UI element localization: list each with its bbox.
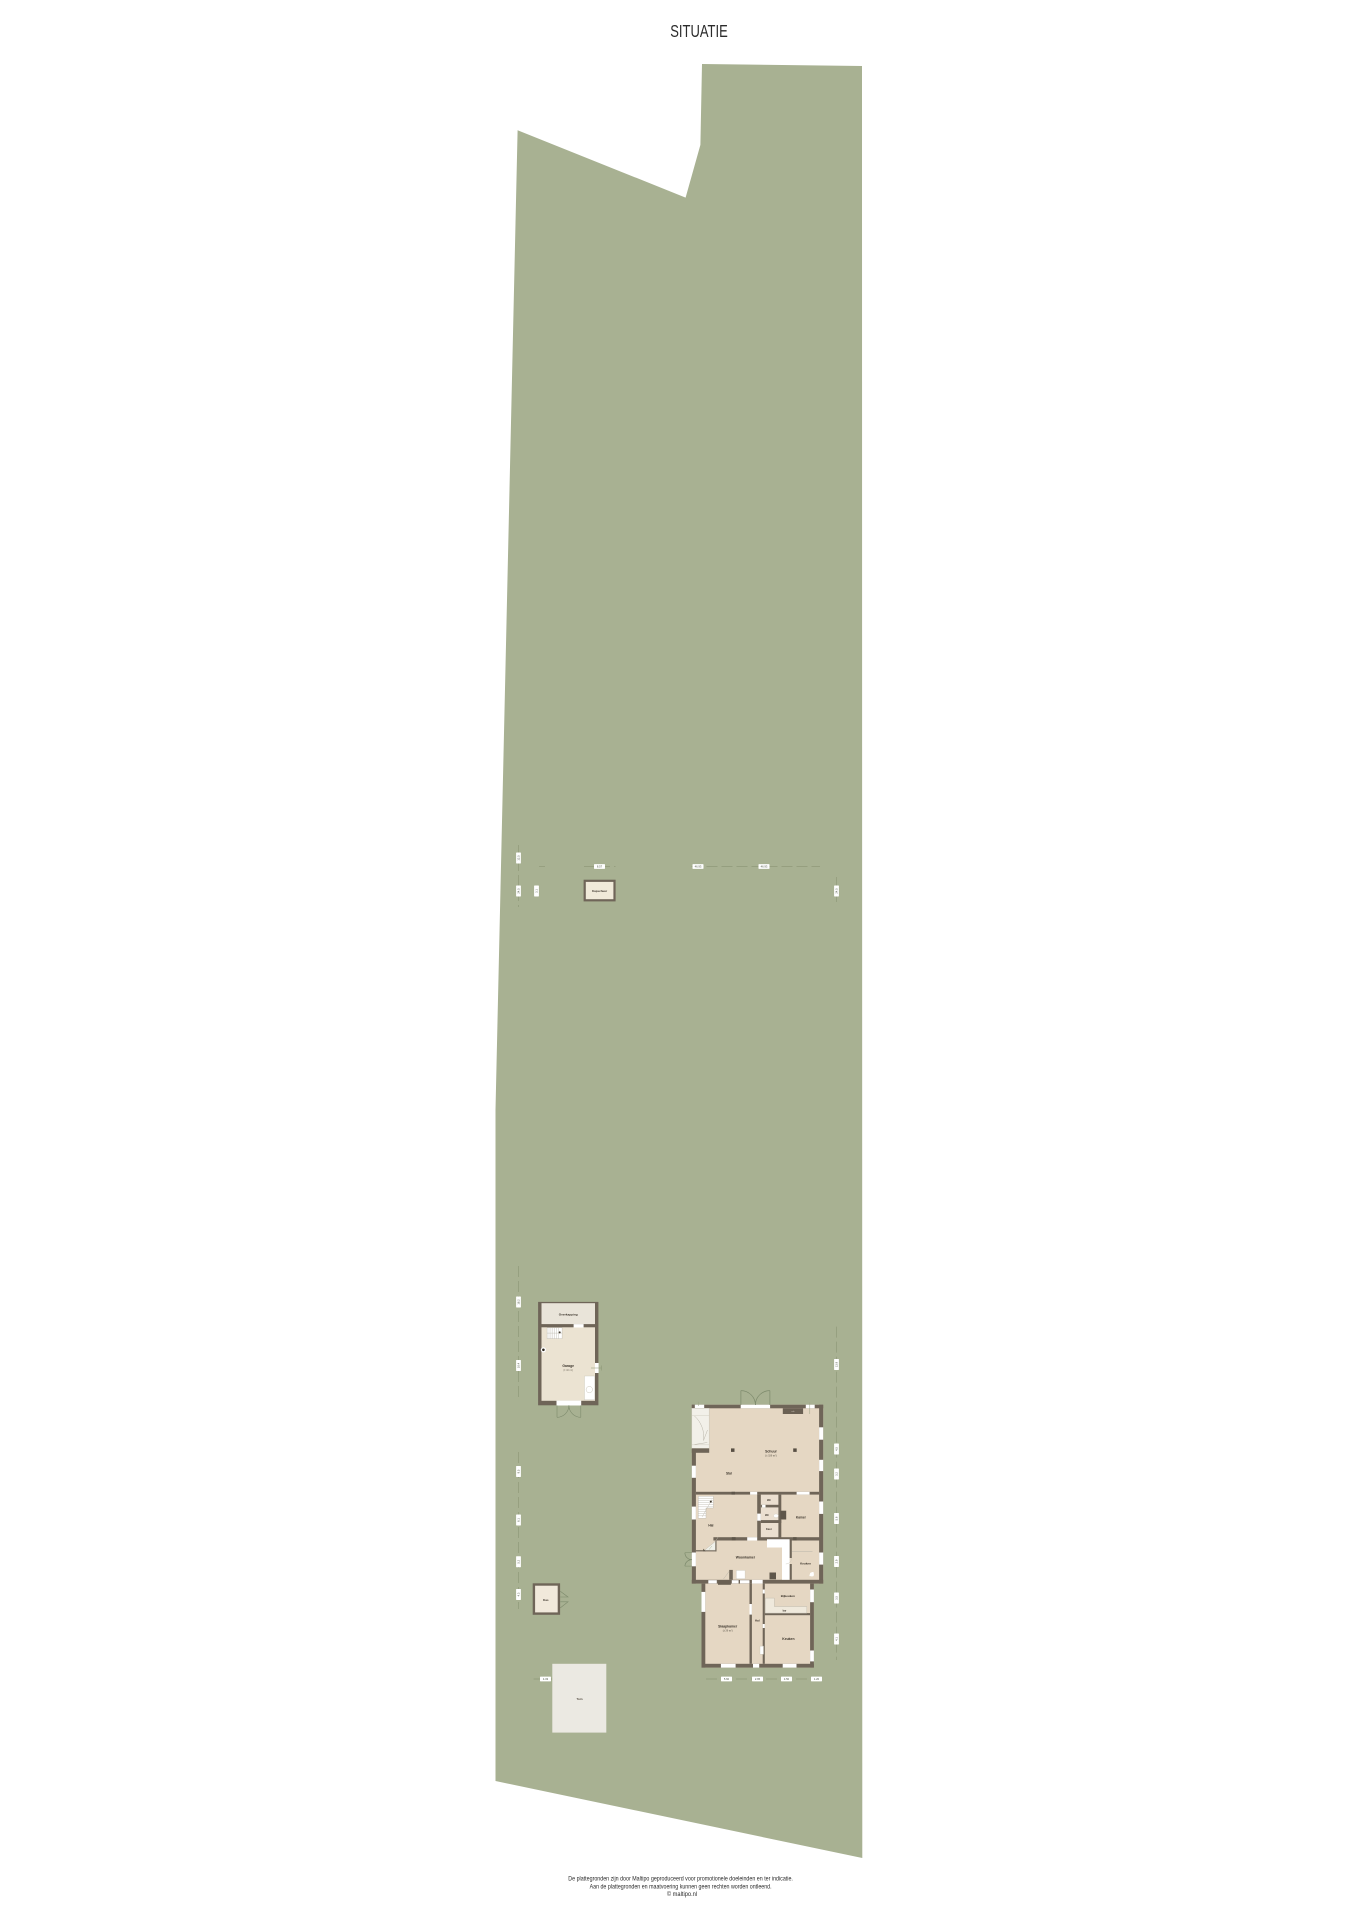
svg-text:4.1: 4.1: [834, 1637, 838, 1641]
svg-text:Overkapping: Overkapping: [559, 1313, 578, 1317]
svg-text:8.57: 8.57: [597, 865, 603, 869]
svg-text:bar: bar: [783, 1609, 787, 1612]
svg-text:6.1: 6.1: [516, 1518, 520, 1522]
svg-text:2.9: 2.9: [834, 1559, 838, 1563]
svg-text:SITUATIE: SITUATIE: [670, 21, 728, 41]
svg-text:4.3: 4.3: [516, 1592, 520, 1596]
svg-text:Keuken: Keuken: [782, 1637, 794, 1641]
svg-text:4.33: 4.33: [543, 1677, 549, 1681]
svg-text:(± 150 m²): (± 150 m²): [765, 1454, 776, 1458]
svg-text:5.6: 5.6: [834, 1516, 838, 1520]
svg-text:2.95: 2.95: [755, 1677, 761, 1681]
svg-text:Stal: Stal: [726, 1471, 732, 1475]
svg-text:12.5: 12.5: [516, 855, 520, 861]
svg-text:Hal: Hal: [755, 1619, 760, 1623]
svg-text:Bijkeuken: Bijkeuken: [781, 1594, 795, 1598]
svg-text:Wc: Wc: [767, 1498, 772, 1502]
svg-text:Kas: Kas: [543, 1598, 549, 1602]
svg-text:9.5: 9.5: [516, 1469, 520, 1473]
svg-text:Kast: Kast: [766, 1527, 772, 1531]
svg-text:5.2: 5.2: [516, 1559, 520, 1563]
svg-text:© maltipo.nl: © maltipo.nl: [667, 1890, 698, 1898]
svg-text:Woonkamer: Woonkamer: [736, 1556, 756, 1560]
svg-text:24.5: 24.5: [516, 888, 520, 894]
svg-text:Kapschuur: Kapschuur: [592, 889, 608, 893]
svg-text:Schuur: Schuur: [765, 1450, 777, 1454]
svg-text:(± 20 m²): (± 20 m²): [723, 1628, 733, 1632]
svg-text:5.60: 5.60: [724, 1677, 730, 1681]
svg-text:Kamer: Kamer: [796, 1515, 807, 1519]
svg-text:24.5: 24.5: [834, 888, 838, 894]
svg-text:Wc: Wc: [765, 1513, 770, 1517]
svg-text:Keuken: Keuken: [800, 1561, 811, 1565]
svg-text:De plattegronden zijn door Mal: De plattegronden zijn door Maltipo gepro…: [568, 1876, 793, 1883]
svg-text:Aan de plattegronden en maatvo: Aan de plattegronden en maatvoering kunn…: [590, 1883, 772, 1890]
svg-text:46.93: 46.93: [695, 865, 702, 869]
svg-text:3.2: 3.2: [834, 1472, 838, 1476]
svg-text:10.4: 10.4: [516, 1362, 520, 1368]
svg-text:Garage: Garage: [562, 1364, 574, 1368]
svg-text:18.2: 18.2: [516, 1299, 520, 1305]
svg-text:3.1: 3.1: [534, 889, 538, 893]
svg-text:4.50: 4.50: [784, 1677, 790, 1681]
svg-text:Slaapkamer: Slaapkamer: [718, 1625, 738, 1629]
svg-text:3.5: 3.5: [834, 1596, 838, 1600]
svg-text:(± 40 m²): (± 40 m²): [563, 1369, 573, 1372]
svg-text:Tuin: Tuin: [576, 1697, 582, 1701]
svg-text:4.5: 4.5: [834, 1447, 838, 1451]
svg-text:13.9: 13.9: [834, 1361, 838, 1367]
svg-text:Hal: Hal: [708, 1524, 713, 1528]
svg-text:46.93: 46.93: [761, 865, 768, 869]
svg-text:1.20: 1.20: [814, 1677, 820, 1681]
